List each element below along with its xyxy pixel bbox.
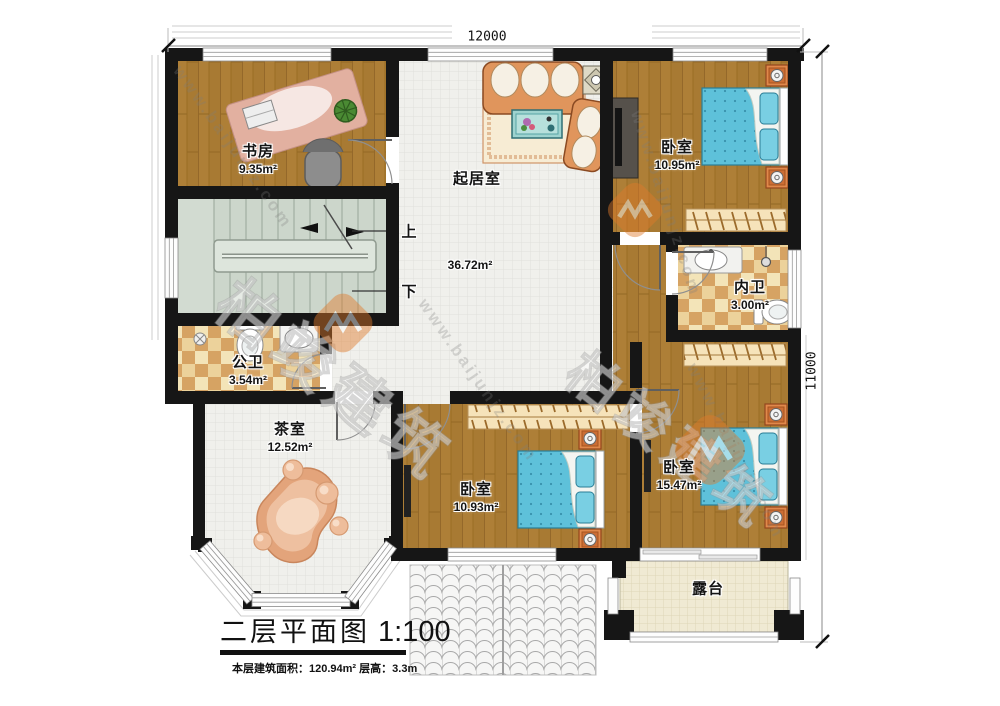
tv-icon (404, 465, 411, 517)
plan-footnote: 本层建筑面积：120.94m² 层高：3.3m (232, 660, 417, 676)
window (788, 250, 801, 328)
window (165, 238, 178, 298)
tv-icon (615, 108, 622, 166)
room-name: 茶室 (268, 421, 313, 440)
title-block: 二层平面图1:100 (220, 610, 451, 649)
room-label-public-bath: 公卫 3.54m² (229, 354, 267, 388)
nightstand (579, 428, 601, 449)
footnote-area-label: 本层建筑面积： (232, 663, 309, 675)
lamp-icon (592, 76, 601, 85)
floor-plan-graphic (0, 0, 1000, 706)
footnote-height-value: 3.3m (392, 663, 417, 675)
room-name: 卧室 (655, 139, 700, 158)
nightstand (765, 507, 787, 528)
room-label-bedroom-mid: 卧室 10.93m² (454, 481, 499, 515)
plan-title: 二层平面图 (220, 617, 370, 647)
room-name: 内卫 (731, 279, 769, 298)
room-area-living: 36.72m² (448, 258, 493, 272)
shower-icon (762, 258, 771, 267)
room-label-bedroom-top: 卧室 10.95m² (655, 139, 700, 173)
nightstand (579, 529, 601, 550)
tv-icon (644, 440, 651, 492)
stairs-up-label: 上 (401, 221, 416, 242)
room-label-study: 书房 9.35m² (239, 143, 277, 177)
desk-chair (305, 150, 341, 188)
title-underline (220, 650, 406, 655)
room-label-inner-bath: 内卫 3.00m² (731, 279, 769, 313)
window (203, 48, 331, 61)
bed (701, 428, 787, 505)
room-area: 3.00m² (731, 298, 769, 313)
bay-window (252, 594, 350, 607)
room-area: 12.52m² (268, 440, 313, 455)
room-area: 10.93m² (454, 500, 499, 515)
room-label-tea-room: 茶室 12.52m² (268, 421, 313, 455)
room-area: 9.35m² (239, 162, 277, 177)
plan-scale: 1:100 (378, 616, 451, 648)
window (428, 48, 553, 61)
sliding-door (640, 548, 760, 561)
room-area: 10.95m² (655, 158, 700, 173)
footnote-height-label: 层高： (356, 663, 392, 675)
bed (518, 451, 604, 528)
dimension-right-label: 11000 (805, 351, 820, 390)
bed (702, 88, 788, 165)
room-name: 卧室 (657, 459, 702, 478)
footnote-area-value: 120.94m² (309, 663, 356, 675)
room-label-bedroom-right: 卧室 15.47m² (657, 459, 702, 493)
room-area: 15.47m² (657, 478, 702, 493)
room-name: 书房 (239, 143, 277, 162)
window (448, 548, 556, 561)
stairs-down-label: 下 (401, 281, 416, 302)
nightstand (766, 65, 788, 86)
room-label-terrace: 露台 (692, 578, 724, 599)
window (673, 48, 767, 61)
nightstand (765, 404, 787, 425)
nightstand (766, 167, 788, 188)
room-name: 公卫 (229, 354, 267, 373)
dimension-top-label: 12000 (467, 30, 506, 45)
room-area: 3.54m² (229, 373, 267, 388)
room-name: 卧室 (454, 481, 499, 500)
floor-plan-page: www.baijunjz.com www.baijunjz.com www.ba… (0, 0, 1000, 706)
room-label-living: 起居室 (453, 168, 501, 189)
